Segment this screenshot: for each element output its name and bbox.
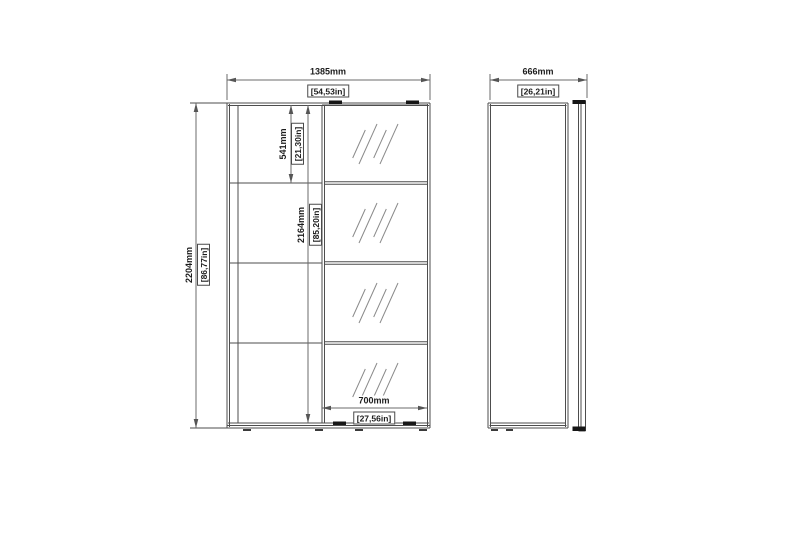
- front-view-outline: [190, 103, 430, 428]
- interior-height-dimension: 2164mm [85,20in]: [296, 204, 322, 246]
- top-section-in-value: [21,30in]: [291, 123, 304, 165]
- front-height-in-value: [86,77in]: [197, 244, 210, 286]
- side-view-outline: [488, 103, 568, 428]
- mirror-door-outline: [322, 105, 428, 423]
- front-width-dimension-mm: 1385mm: [309, 67, 347, 78]
- technical-drawing-canvas: 1385mm [54,53in] 666mm [26,21in] 2204mm …: [0, 0, 800, 533]
- side-depth-dimension-mm: 666mm: [521, 67, 554, 78]
- mirror-glass-hatch: [353, 124, 398, 403]
- dimension-arrowheads: [194, 78, 587, 428]
- interior-height-mm-value: 2164mm: [296, 206, 307, 244]
- side-depth-dimension-in: [26,21in]: [517, 83, 559, 98]
- door-width-dimension-in: [27,56in]: [353, 410, 395, 425]
- top-section-dimension: 541mm [21,30in]: [278, 123, 304, 165]
- door-width-in-value: [27,56in]: [353, 412, 395, 425]
- front-height-mm-value: 2204mm: [184, 246, 195, 284]
- door-width-mm-value: 700mm: [357, 396, 390, 407]
- side-view-feet-marks: [491, 429, 513, 431]
- top-section-mm-value: 541mm: [278, 127, 289, 160]
- front-height-dimension: 2204mm [86,77in]: [184, 244, 210, 286]
- wardrobe-dimension-drawing: [0, 0, 800, 533]
- side-depth-in-value: [26,21in]: [517, 85, 559, 98]
- door-width-dimension-mm: 700mm: [357, 396, 390, 407]
- interior-height-in-value: [85,20in]: [309, 204, 322, 246]
- door-roller-marks-front: [329, 101, 419, 426]
- front-width-in-value: [54,53in]: [307, 85, 349, 98]
- dimension-lines: [196, 74, 587, 428]
- front-view-feet-marks: [243, 429, 427, 431]
- side-view-door-panel: [579, 101, 586, 432]
- side-depth-mm-value: 666mm: [521, 67, 554, 78]
- front-width-mm-value: 1385mm: [309, 67, 347, 78]
- front-width-dimension-in: [54,53in]: [307, 83, 349, 98]
